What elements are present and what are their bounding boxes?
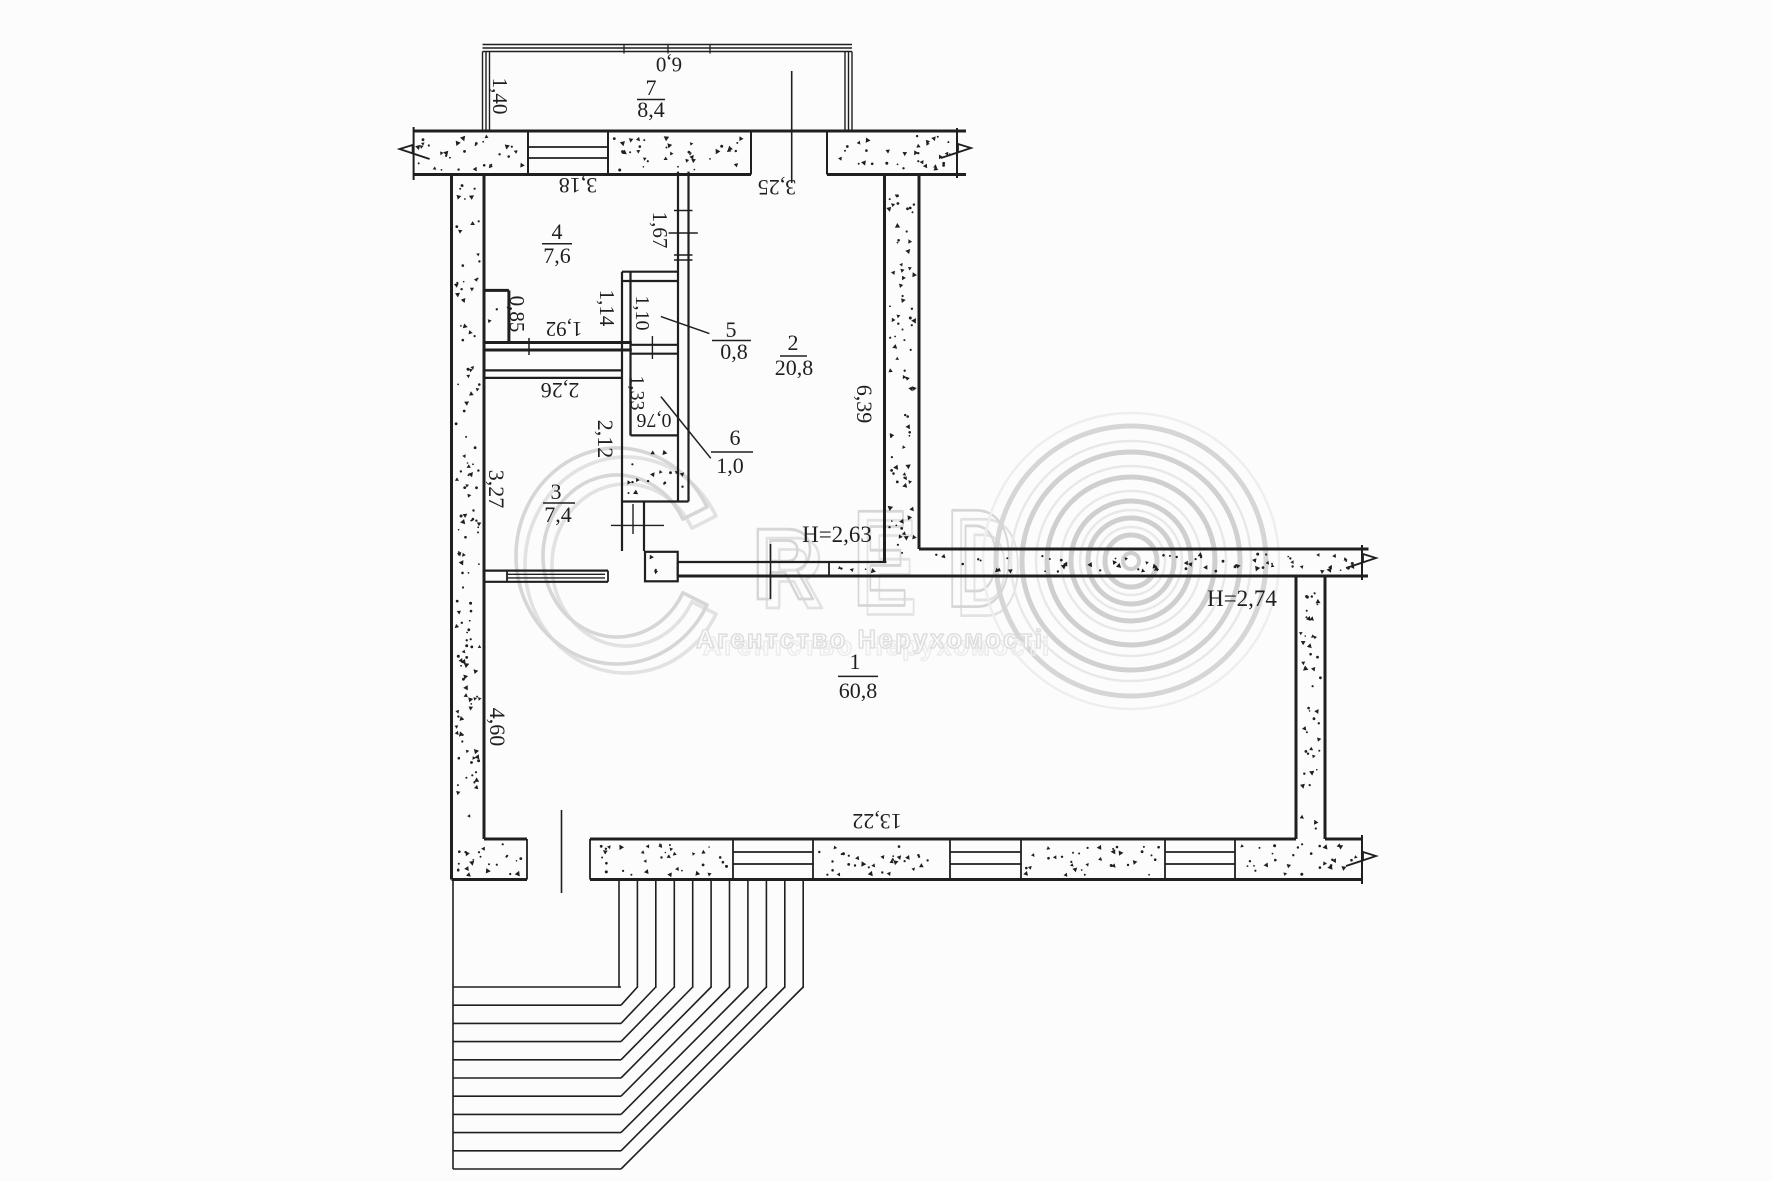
svg-text:1,33: 1,33: [626, 376, 648, 411]
svg-text:0,85: 0,85: [505, 296, 529, 333]
svg-text:0,8: 0,8: [720, 339, 748, 364]
svg-text:1,0: 1,0: [716, 453, 744, 478]
svg-text:6: 6: [730, 425, 741, 450]
svg-text:H=2,74: H=2,74: [1207, 586, 1277, 611]
svg-text:3,27: 3,27: [484, 470, 509, 509]
svg-text:1: 1: [850, 649, 861, 674]
svg-text:2,12: 2,12: [593, 420, 618, 459]
svg-text:1,92: 1,92: [546, 317, 583, 341]
svg-text:6,0: 6,0: [656, 53, 682, 77]
svg-text:6,39: 6,39: [852, 385, 877, 424]
svg-text:1,14: 1,14: [595, 290, 619, 327]
svg-text:1,67: 1,67: [648, 212, 672, 249]
svg-text:8,4: 8,4: [637, 97, 665, 122]
svg-text:60,8: 60,8: [839, 678, 878, 703]
svg-text:20,8: 20,8: [775, 355, 814, 380]
svg-text:1,10: 1,10: [631, 296, 653, 331]
svg-text:7,4: 7,4: [544, 502, 572, 527]
svg-text:H=2,63: H=2,63: [802, 522, 872, 547]
svg-text:13,22: 13,22: [852, 809, 902, 834]
svg-text:0,76: 0,76: [637, 409, 672, 431]
svg-text:E: E: [853, 482, 908, 635]
svg-text:4: 4: [552, 219, 563, 244]
svg-text:3,18: 3,18: [559, 173, 598, 198]
svg-text:3,25: 3,25: [758, 175, 797, 200]
svg-text:Агентство Нерухомості: Агентство Нерухомості: [696, 626, 1045, 654]
svg-text:2: 2: [788, 330, 799, 355]
svg-text:3: 3: [551, 479, 562, 504]
svg-text:7,6: 7,6: [543, 243, 571, 268]
svg-text:4,60: 4,60: [485, 708, 510, 747]
svg-text:2,26: 2,26: [541, 378, 580, 403]
svg-text:1,40: 1,40: [488, 78, 512, 115]
